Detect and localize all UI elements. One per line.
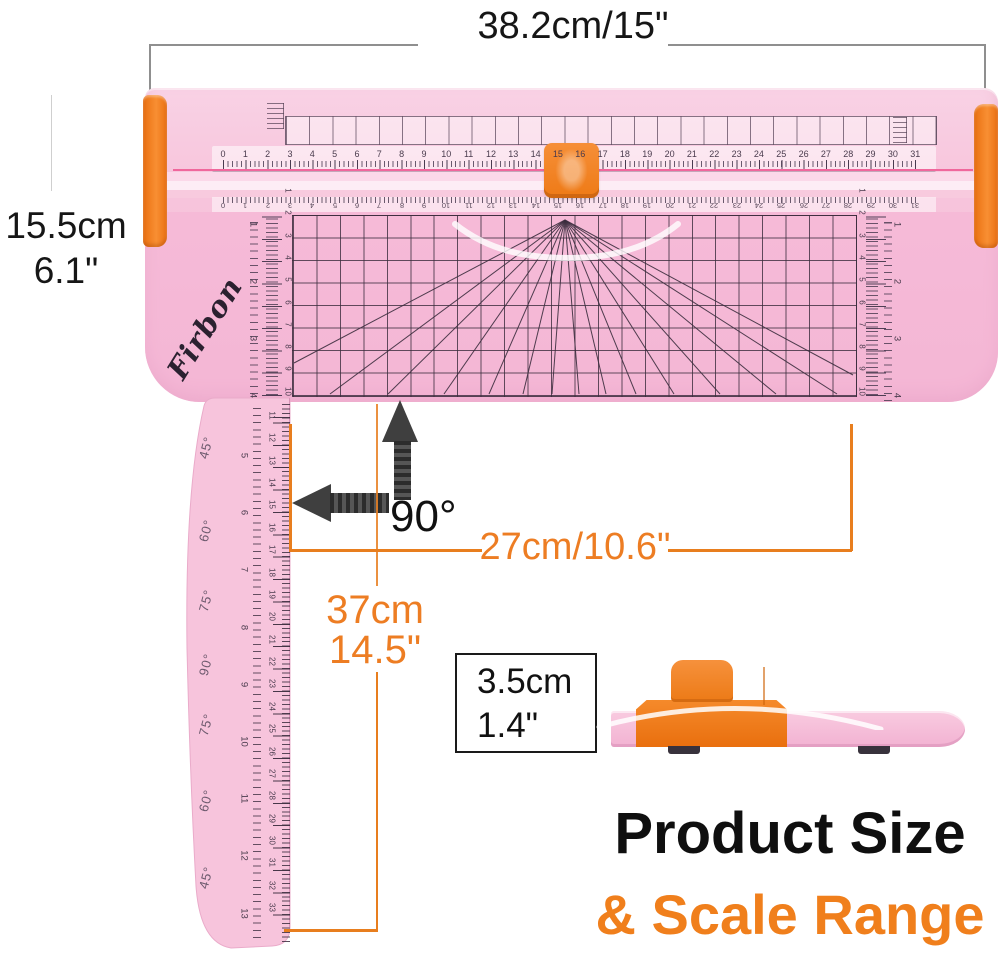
grid-left-cm-number: 10 bbox=[284, 383, 293, 399]
trimmer-side-view bbox=[608, 655, 993, 760]
arm-cm-number: 27 bbox=[268, 765, 277, 781]
bottom-ruler-number: 24 bbox=[750, 201, 768, 210]
grid-left-inch-number: 3 bbox=[248, 330, 259, 346]
grid-right-inch-number: 4 bbox=[892, 387, 903, 403]
arm-cm-number: 18 bbox=[268, 564, 277, 580]
grid-right-cm-number: 2 bbox=[858, 205, 867, 221]
bottom-ruler-number: 14 bbox=[527, 201, 545, 210]
top-ruler-number: 23 bbox=[728, 149, 746, 159]
arm-cm-number: 29 bbox=[268, 810, 277, 826]
bottom-ruler-number: 0 bbox=[214, 201, 232, 210]
bottom-ruler-number: 27 bbox=[817, 201, 835, 210]
arm-cm-number: 31 bbox=[268, 855, 277, 871]
height-in: 6.1" bbox=[0, 248, 132, 293]
grid-left-cm-number: 4 bbox=[284, 249, 293, 265]
bottom-ruler-number: 23 bbox=[728, 201, 746, 210]
bottom-ruler-number: 25 bbox=[772, 201, 790, 210]
bottom-ruler-number: 15 bbox=[549, 201, 567, 210]
bottom-ruler-number: 21 bbox=[683, 201, 701, 210]
top-ruler-number: 17 bbox=[594, 149, 612, 159]
arm-cm-number: 11 bbox=[268, 408, 277, 424]
angle-fan-lines bbox=[294, 220, 853, 394]
top-ruler-number: 21 bbox=[683, 149, 701, 159]
top-ruler-number: 14 bbox=[527, 149, 545, 159]
top-ruler-number: 16 bbox=[571, 149, 589, 159]
top-ruler-number: 24 bbox=[750, 149, 768, 159]
grid-left-inch-number: 1 bbox=[248, 217, 259, 233]
grid-right-inch-ticks bbox=[884, 219, 892, 401]
page-subtitle: & Scale Range bbox=[580, 882, 1000, 947]
top-ruler-number: 5 bbox=[326, 149, 344, 159]
top-ruler-number: 19 bbox=[638, 149, 656, 159]
arm-length-dim-tick bbox=[284, 929, 378, 932]
side-view-foot-left bbox=[668, 746, 700, 754]
bottom-ruler-number: 6 bbox=[348, 201, 366, 210]
mini-scale-left bbox=[267, 103, 284, 129]
brand-logo: Firbon bbox=[155, 288, 255, 368]
bottom-ruler-number: 17 bbox=[594, 201, 612, 210]
bottom-ruler-number: 28 bbox=[839, 201, 857, 210]
top-ruler-number: 4 bbox=[303, 149, 321, 159]
top-ruler-number: 7 bbox=[370, 149, 388, 159]
arm-cm-number: 14 bbox=[268, 475, 277, 491]
thickness-dimension-box: 3.5cm 1.4" bbox=[455, 653, 597, 753]
top-ruler-number: 1 bbox=[236, 149, 254, 159]
arm-cm-number: 24 bbox=[268, 698, 277, 714]
left-arrow-icon bbox=[292, 484, 331, 522]
top-ruler-number: 18 bbox=[616, 149, 634, 159]
arm-cm-number: 22 bbox=[268, 654, 277, 670]
grid-right-cm-number: 3 bbox=[858, 227, 867, 243]
grid-right-cm-number: 6 bbox=[858, 294, 867, 310]
grid-right-cm-number: 4 bbox=[858, 249, 867, 265]
grid-right-inch-number: 2 bbox=[892, 273, 903, 289]
grid-left-inch-number: 4 bbox=[248, 387, 259, 403]
side-view-guide-arc bbox=[595, 685, 885, 730]
top-ruler-number: 28 bbox=[839, 149, 857, 159]
mini-scale-right bbox=[893, 117, 907, 143]
grid-right-cm-number: 10 bbox=[858, 383, 867, 399]
grid-left-cm-number: 9 bbox=[284, 361, 293, 377]
top-ruler-number: 6 bbox=[348, 149, 366, 159]
grid-left-cm-number: 8 bbox=[284, 339, 293, 355]
arm-cm-number: 17 bbox=[268, 542, 277, 558]
bottom-ruler-number: 26 bbox=[795, 201, 813, 210]
arm-inch-number: 12 bbox=[239, 848, 250, 864]
grid-right-cm-number: 7 bbox=[858, 316, 867, 332]
arm-cm-number: 20 bbox=[268, 609, 277, 625]
top-ruler-number: 9 bbox=[415, 149, 433, 159]
bottom-ruler-number: 18 bbox=[616, 201, 634, 210]
cut-width-dim-tick-left bbox=[289, 424, 292, 551]
cut-width-dim-tick-right bbox=[850, 424, 853, 551]
top-grid-strip bbox=[285, 116, 937, 145]
top-ruler-number: 11 bbox=[460, 149, 478, 159]
arm-cm-number: 21 bbox=[268, 631, 277, 647]
side-view-foot-right bbox=[858, 746, 890, 754]
height-cm: 15.5cm bbox=[0, 203, 132, 248]
bottom-ruler-number: 10 bbox=[437, 201, 455, 210]
bottom-ruler-number: 1 bbox=[236, 201, 254, 210]
grid-right-cm-number: 9 bbox=[858, 361, 867, 377]
left-arrow-shaft bbox=[330, 493, 389, 513]
arm-cm-number: 16 bbox=[268, 519, 277, 535]
top-ruler-number: 15 bbox=[549, 149, 567, 159]
bottom-ruler-number: 30 bbox=[884, 201, 902, 210]
arm-inch-number: 13 bbox=[239, 905, 250, 921]
width-dimension-label: 38.2cm/15" bbox=[423, 5, 723, 48]
top-ruler-number: 8 bbox=[393, 149, 411, 159]
top-ruler-number: 25 bbox=[772, 149, 790, 159]
angle-fan-overlay bbox=[292, 215, 855, 395]
top-ruler-number: 31 bbox=[906, 149, 924, 159]
top-ruler-number: 20 bbox=[661, 149, 679, 159]
page-title: Product Size bbox=[580, 800, 1000, 867]
arm-inch-number: 8 bbox=[239, 619, 250, 635]
grid-left-cm-number: 5 bbox=[284, 272, 293, 288]
arm-length-dim-line-top bbox=[376, 404, 378, 586]
grid-left-cm-number: 1 bbox=[284, 183, 293, 199]
arm-cm-number: 13 bbox=[268, 452, 277, 468]
arm-cm-number: 12 bbox=[268, 430, 277, 446]
top-ruler-number: 29 bbox=[862, 149, 880, 159]
top-ruler-number: 3 bbox=[281, 149, 299, 159]
grid-right-cm-number: 5 bbox=[858, 272, 867, 288]
up-arrow-icon bbox=[382, 400, 418, 442]
bottom-ruler-number: 22 bbox=[705, 201, 723, 210]
grid-left-cm-number: 7 bbox=[284, 316, 293, 332]
arm-length-dimension-label: 37cm 14.5" bbox=[300, 590, 450, 670]
left-orange-handle bbox=[143, 95, 167, 247]
product-size-diagram: 38.2cm/15" 15.5cm 6.1" Firbon bbox=[0, 0, 1000, 954]
height-dim-line bbox=[51, 95, 52, 191]
right-orange-handle bbox=[974, 104, 998, 248]
bottom-ruler-number: 7 bbox=[370, 201, 388, 210]
arm-inch-number: 11 bbox=[239, 791, 250, 807]
height-dimension-label: 15.5cm 6.1" bbox=[0, 203, 132, 293]
bottom-ruler-number: 2 bbox=[259, 201, 277, 210]
arm-length-in: 14.5" bbox=[300, 630, 450, 670]
bottom-ruler-number: 20 bbox=[661, 201, 679, 210]
arm-inch-number: 9 bbox=[239, 676, 250, 692]
grid-left-cm-number: 3 bbox=[284, 227, 293, 243]
top-ruler-number: 10 bbox=[437, 149, 455, 159]
arm-inch-number: 6 bbox=[239, 505, 250, 521]
top-ruler-number: 0 bbox=[214, 149, 232, 159]
bottom-ruler-number: 16 bbox=[571, 201, 589, 210]
arm-cm-number: 28 bbox=[268, 788, 277, 804]
bottom-ruler-number: 13 bbox=[504, 201, 522, 210]
top-ruler-number: 13 bbox=[504, 149, 522, 159]
arm-length-dim-line-bottom bbox=[376, 672, 378, 930]
cut-width-dimension-label: 27cm/10.6" bbox=[430, 526, 720, 569]
width-dim-line-left bbox=[150, 44, 418, 46]
arm-cm-number: 26 bbox=[268, 743, 277, 759]
arm-cm-number: 15 bbox=[268, 497, 277, 513]
arm-inch-number: 10 bbox=[239, 734, 250, 750]
grid-right-cm-number: 1 bbox=[858, 183, 867, 199]
grid-left-inch-number: 2 bbox=[248, 273, 259, 289]
top-ruler-number: 30 bbox=[884, 149, 902, 159]
arm-cm-number: 33 bbox=[268, 900, 277, 916]
thickness-in: 1.4" bbox=[477, 704, 595, 748]
bottom-ruler-number: 9 bbox=[415, 201, 433, 210]
grid-left-cm-number: 6 bbox=[284, 294, 293, 310]
arm-cm-number: 23 bbox=[268, 676, 277, 692]
grid-right-cm-major-ticks bbox=[866, 215, 886, 396]
arm-cm-number: 19 bbox=[268, 586, 277, 602]
bottom-ruler-number: 5 bbox=[326, 201, 344, 210]
arm-inch-number: 5 bbox=[239, 448, 250, 464]
bottom-ruler-number: 8 bbox=[393, 201, 411, 210]
bottom-ruler-number: 19 bbox=[638, 201, 656, 210]
top-ruler-number: 2 bbox=[259, 149, 277, 159]
arm-cm-number: 25 bbox=[268, 721, 277, 737]
bottom-ruler-number: 31 bbox=[906, 201, 924, 210]
bottom-ruler-number: 11 bbox=[460, 201, 478, 210]
grid-right-inch-number: 3 bbox=[892, 330, 903, 346]
arm-length-cm: 37cm bbox=[300, 590, 450, 630]
grid-right-cm-number: 8 bbox=[858, 339, 867, 355]
top-ruler-number: 12 bbox=[482, 149, 500, 159]
grid-left-cm-major-ticks bbox=[262, 215, 282, 396]
top-ruler-number: 22 bbox=[705, 149, 723, 159]
bottom-ruler-number: 4 bbox=[303, 201, 321, 210]
thickness-cm: 3.5cm bbox=[477, 660, 595, 704]
top-ruler-number: 26 bbox=[795, 149, 813, 159]
side-view-arc-path bbox=[599, 708, 881, 729]
arm-cm-number: 30 bbox=[268, 833, 277, 849]
bottom-ruler-number: 12 bbox=[482, 201, 500, 210]
top-ruler-number: 27 bbox=[817, 149, 835, 159]
width-dim-tick-left bbox=[149, 44, 151, 90]
grid-right-inch-number: 1 bbox=[892, 217, 903, 233]
grid-left-cm-number: 2 bbox=[284, 205, 293, 221]
arm-inch-ticks bbox=[253, 403, 261, 938]
arm-inch-number: 7 bbox=[239, 562, 250, 578]
arm-cm-number: 32 bbox=[268, 877, 277, 893]
